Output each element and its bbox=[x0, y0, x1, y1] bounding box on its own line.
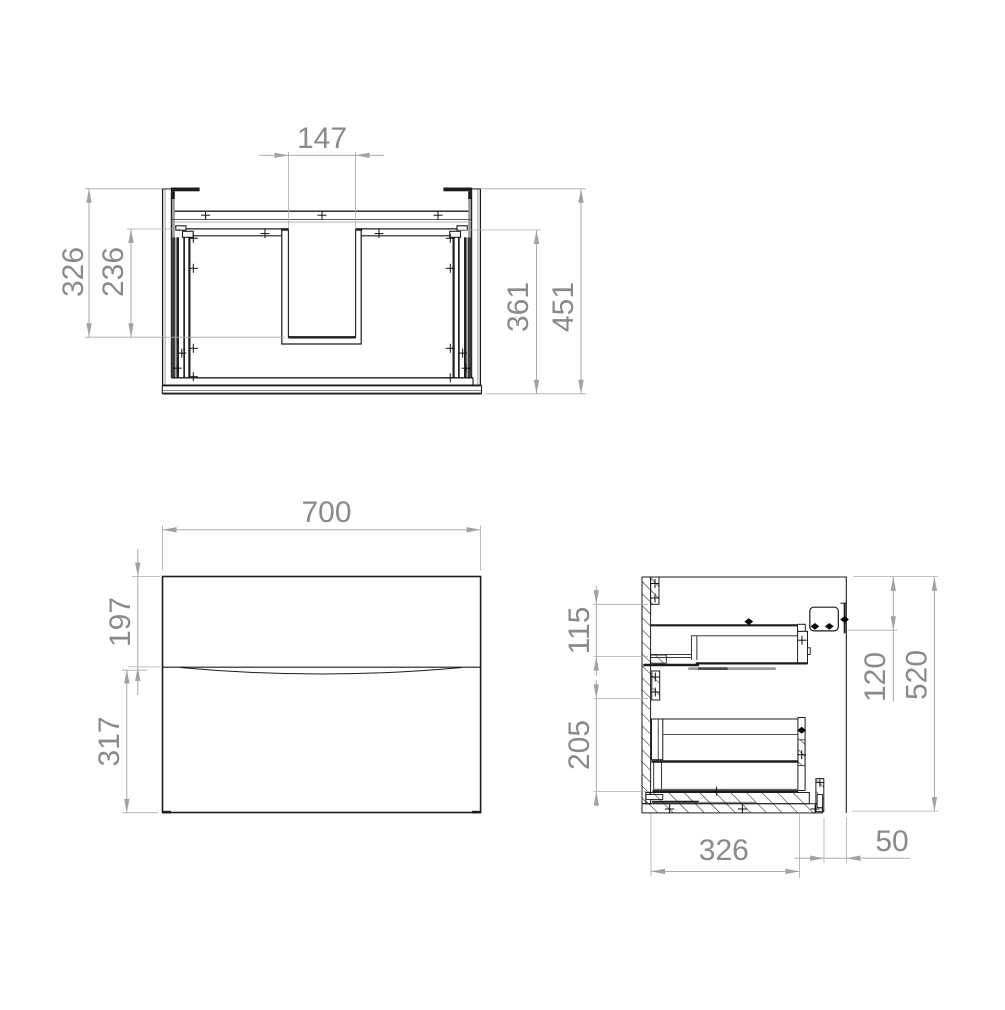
svg-text:205: 205 bbox=[563, 720, 596, 770]
svg-text:147: 147 bbox=[297, 122, 347, 155]
svg-text:700: 700 bbox=[301, 496, 351, 529]
svg-text:236: 236 bbox=[97, 247, 130, 297]
svg-text:326: 326 bbox=[699, 834, 749, 867]
svg-text:120: 120 bbox=[859, 652, 892, 702]
svg-text:520: 520 bbox=[901, 650, 934, 700]
svg-text:50: 50 bbox=[875, 825, 908, 858]
svg-text:115: 115 bbox=[563, 607, 596, 655]
svg-text:326: 326 bbox=[57, 247, 90, 297]
svg-text:361: 361 bbox=[502, 282, 535, 332]
svg-text:197: 197 bbox=[104, 597, 137, 647]
svg-text:317: 317 bbox=[93, 716, 126, 766]
svg-text:451: 451 bbox=[547, 282, 580, 332]
